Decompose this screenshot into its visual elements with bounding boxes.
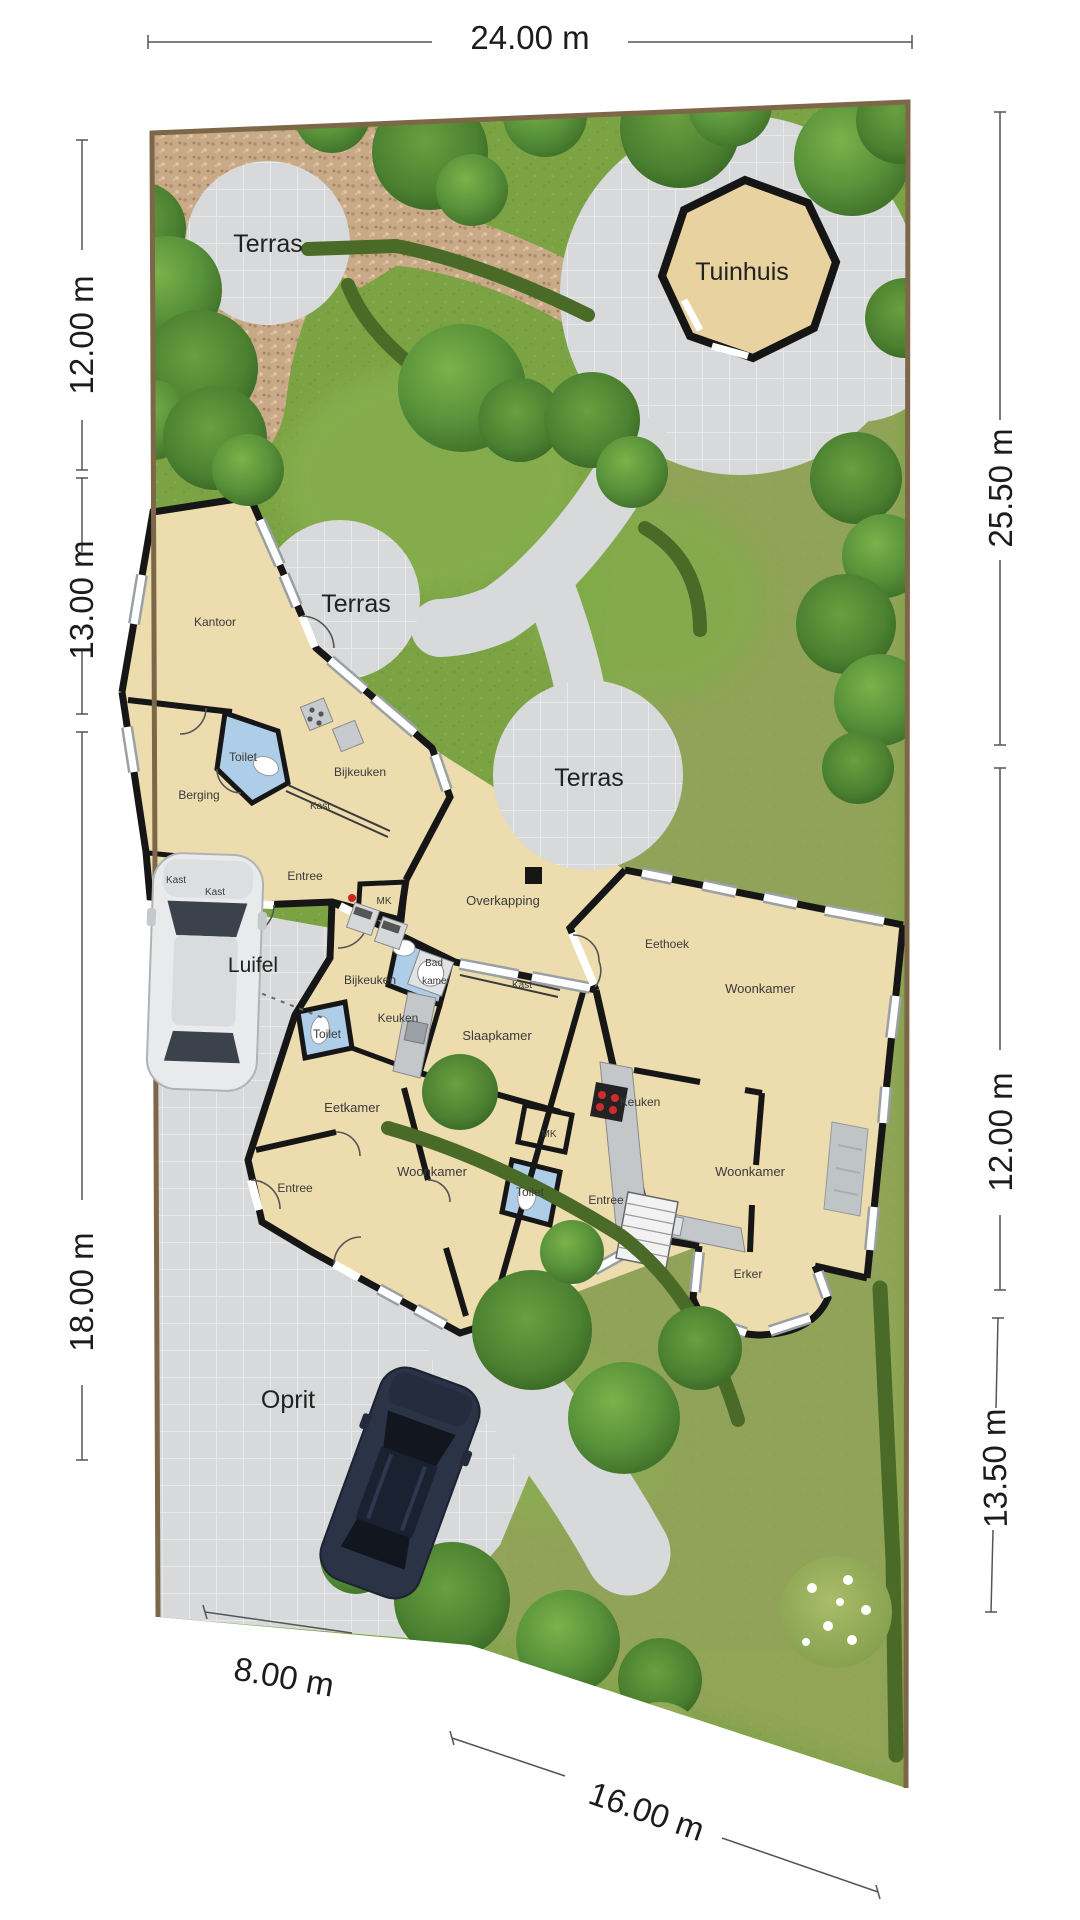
tree [865, 278, 945, 358]
keuken-b-label: Keuken [378, 1011, 419, 1025]
kast-a-label: Kast [310, 801, 330, 812]
dim-right-bottom-label: 13.50 m [975, 1408, 1014, 1528]
slaapkamer-label: Slaapkamer [462, 1028, 532, 1043]
siteplan-drawing: 24.00 m 12.00 m 13.00 m 18.00 m 25.50 m … [0, 0, 1080, 1920]
bijkeuken-b-label: Bijkeuken [344, 973, 396, 987]
mk-a-label: MK [377, 896, 392, 907]
terras-1-label: Terras [233, 230, 302, 258]
eethoek-label: Eethoek [645, 937, 690, 951]
mk-c-label: MK [542, 1129, 557, 1140]
kantoor-label: Kantoor [194, 615, 236, 629]
sofa [824, 1122, 868, 1216]
overkapping-label: Overkapping [466, 893, 540, 908]
oprit-label: Oprit [261, 1386, 315, 1414]
woonkamer-c-label: Woonkamer [725, 981, 796, 996]
tuinhuis-label: Tuinhuis [695, 258, 789, 286]
entree-c-label: Entree [588, 1193, 624, 1207]
eetkamer-label: Eetkamer [324, 1100, 380, 1115]
entree-a-label: Entree [287, 869, 323, 883]
dim-left-mid-label: 13.00 m [63, 540, 100, 659]
terras-3-label: Terras [554, 764, 623, 792]
toilet-b-label: Toilet [313, 1027, 342, 1041]
flowering-shrub [780, 1556, 892, 1668]
entree-b-label: Entree [277, 1181, 313, 1195]
erker-label: Erker [734, 1267, 763, 1281]
dim-right-top-label: 25.50 m [982, 428, 1019, 547]
kast-strip-1-label: Kast [166, 875, 186, 886]
dim-bottom-left-label: 8.00 m [231, 1650, 337, 1704]
siteplan-page: 24.00 m 12.00 m 13.00 m 18.00 m 25.50 m … [0, 0, 1080, 1920]
canopy-post [525, 867, 542, 884]
dim-right-mid-label: 12.00 m [982, 1072, 1019, 1191]
mk-marker [348, 894, 356, 902]
keuken-c-label: Keuken [620, 1095, 661, 1109]
dim-left-bottom-label: 18.00 m [63, 1232, 100, 1351]
kast-b-label: Kast [512, 980, 532, 991]
woonkamer-b-label: Woonkamer [397, 1164, 468, 1179]
badkamer-label-line2: kamer [422, 976, 450, 987]
badkamer-label-line1: Bad [425, 958, 443, 969]
woonkamer-c2-label: Woonkamer [715, 1164, 786, 1179]
flowering-shrub [616, 1702, 704, 1790]
tree [794, 76, 944, 216]
dim-top-label: 24.00 m [470, 19, 589, 56]
tree [422, 1054, 498, 1130]
luifel-label: Luifel [228, 954, 278, 977]
toilet-c-label: Toilet [516, 1185, 545, 1199]
dim-bottom-right-label: 16.00 m [584, 1774, 709, 1848]
dim-left-top-label: 12.00 m [63, 275, 100, 394]
terras-2-label: Terras [321, 590, 390, 618]
toilet-a-label: Toilet [229, 750, 258, 764]
bijkeuken-a-label: Bijkeuken [334, 765, 386, 779]
kast-strip-2-label: Kast [205, 887, 225, 898]
berging-label: Berging [178, 788, 219, 802]
